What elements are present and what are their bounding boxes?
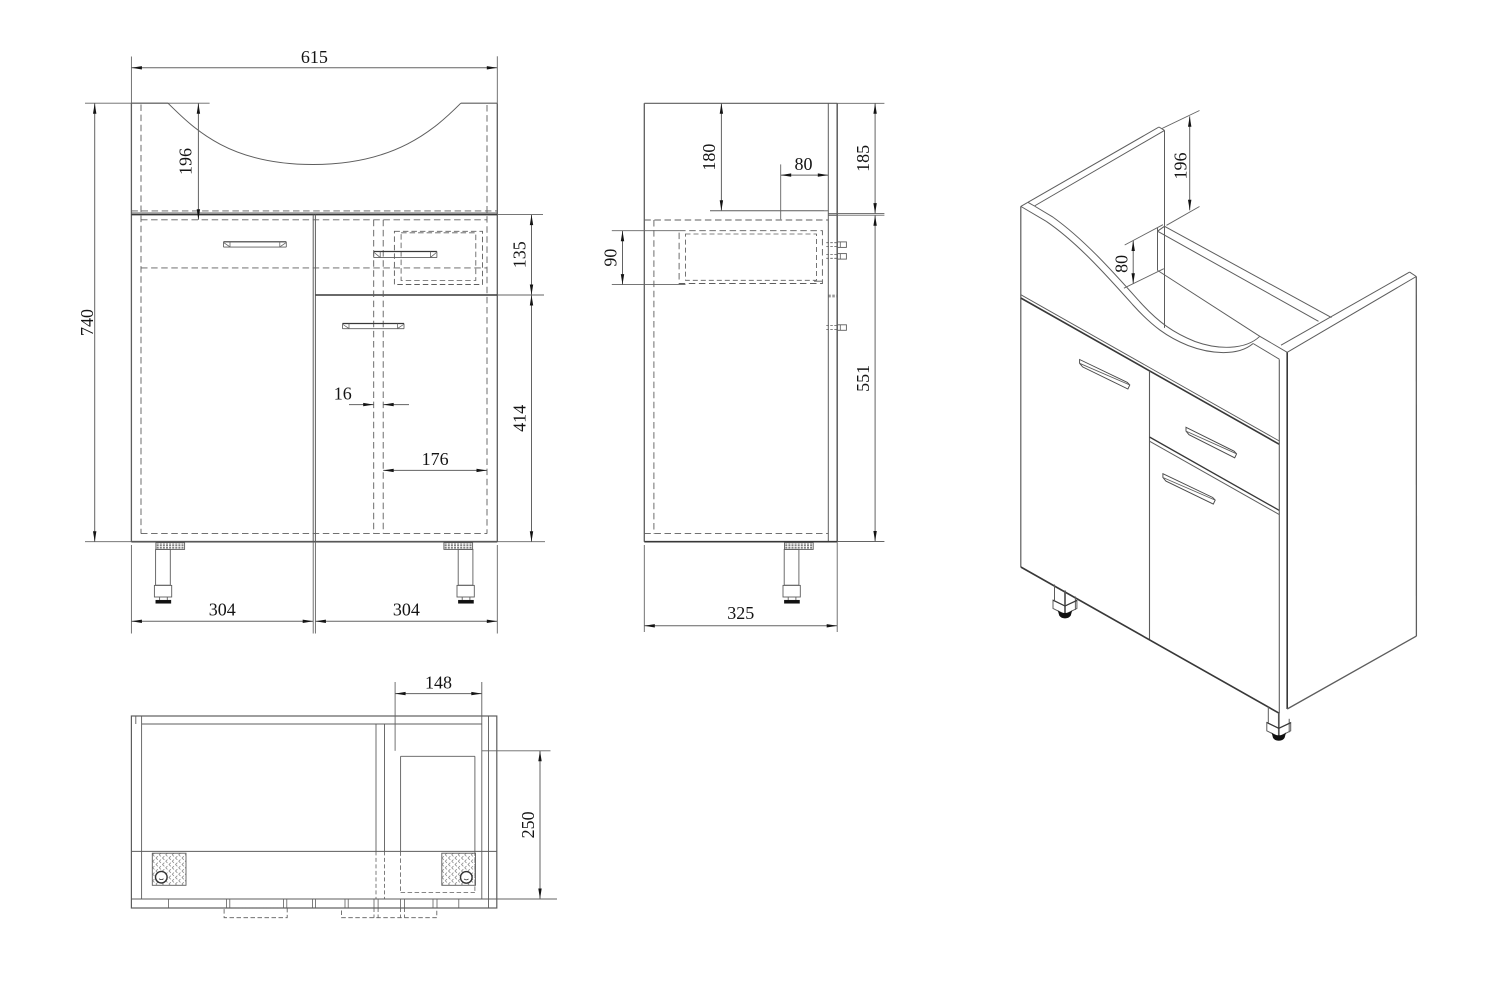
svg-text:196: 196: [1170, 153, 1190, 180]
svg-text:135: 135: [510, 241, 530, 268]
svg-text:80: 80: [1112, 255, 1132, 273]
svg-text:176: 176: [422, 449, 449, 469]
svg-text:414: 414: [510, 405, 530, 432]
svg-text:304: 304: [209, 599, 236, 619]
svg-text:185: 185: [853, 145, 873, 172]
svg-text:615: 615: [301, 47, 328, 67]
svg-text:740: 740: [77, 309, 97, 336]
svg-text:325: 325: [727, 603, 754, 623]
svg-text:250: 250: [518, 811, 538, 838]
svg-text:16: 16: [334, 384, 352, 404]
svg-text:196: 196: [176, 148, 196, 175]
svg-text:90: 90: [601, 249, 621, 267]
svg-text:304: 304: [393, 599, 420, 619]
svg-text:551: 551: [853, 365, 873, 392]
svg-text:80: 80: [795, 154, 813, 174]
svg-text:148: 148: [425, 673, 452, 693]
svg-text:180: 180: [699, 144, 719, 171]
